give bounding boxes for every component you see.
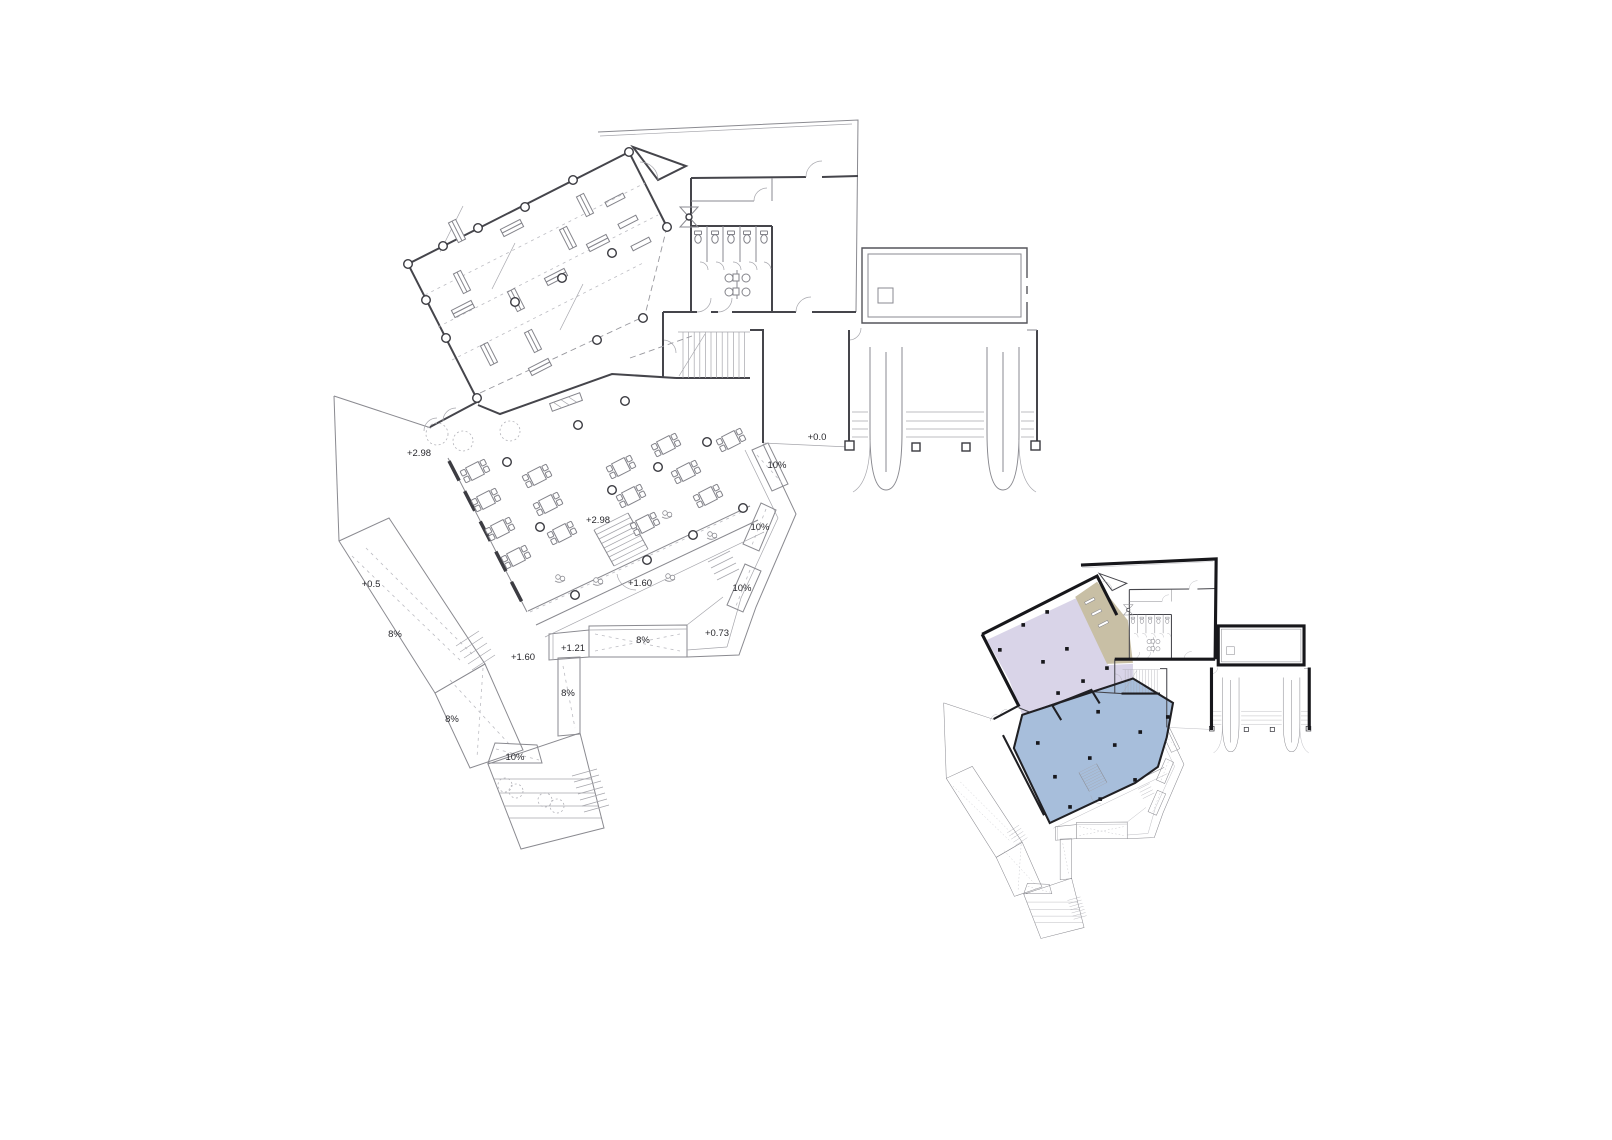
slope-label: 10%	[767, 460, 787, 471]
slope-label: 10%	[750, 522, 770, 533]
ground-floor-plan: +2.98+2.98+0.0+0.5+1.60+1.60+1.21+0.738%…	[334, 120, 1040, 849]
key-plan	[944, 559, 1311, 939]
slope-label: 8%	[388, 629, 402, 640]
restaurant-interior	[449, 393, 746, 610]
slope-label: 8%	[561, 688, 575, 699]
slope-label: 8%	[445, 714, 459, 725]
hall-interior	[425, 183, 692, 393]
level-label: +1.60	[628, 578, 652, 589]
level-label: +1.60	[511, 652, 535, 663]
gym-equipment	[448, 193, 609, 375]
level-label: +0.5	[362, 579, 381, 590]
level-label: +1.21	[561, 643, 585, 654]
floor-plan-svg: +2.98+2.98+0.0+0.5+1.60+1.60+1.21+0.738%…	[0, 0, 1612, 1140]
slope-label: 8%	[636, 635, 650, 646]
slope-label: 10%	[505, 752, 525, 763]
level-label: +0.73	[705, 628, 729, 639]
floor-plan-sheet: +2.98+2.98+0.0+0.5+1.60+1.60+1.21+0.738%…	[0, 0, 1612, 1140]
level-label: +2.98	[407, 448, 431, 459]
building-geometry	[408, 120, 1040, 612]
dining-tables	[460, 428, 746, 570]
slope-label: 10%	[732, 583, 752, 594]
level-label: +2.98	[586, 515, 610, 526]
level-label: +0.0	[808, 432, 827, 443]
